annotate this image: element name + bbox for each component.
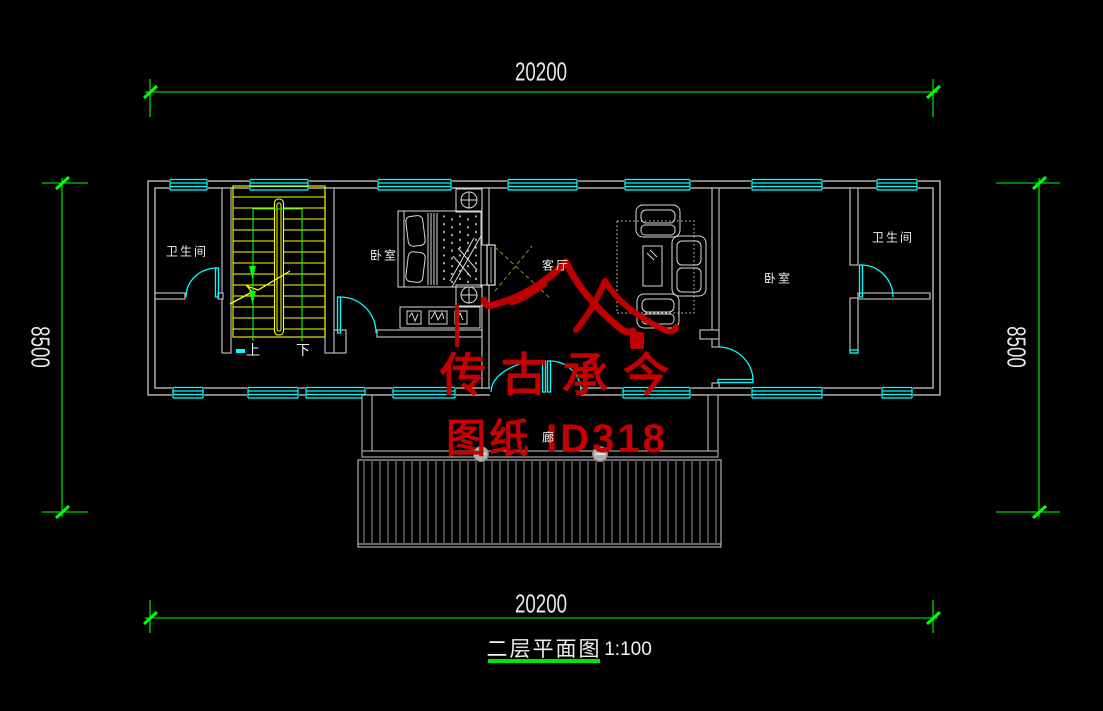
room-label-bedroom-left: 卧室 <box>370 247 398 264</box>
drawing-scale: 1:100 <box>604 639 652 661</box>
terrace-railing <box>358 460 721 547</box>
stair-threshold <box>236 349 245 353</box>
dresser <box>400 307 480 328</box>
corridor-label: 廊 <box>542 429 554 446</box>
watermark-text-line2: 图纸 ID318 <box>446 406 668 464</box>
room-label-bathroom-left: 卫生间 <box>166 243 208 260</box>
floor-plan-canvas[interactable]: 卫生间 卧室 客厅 卧室 卫生间 上 下 廊 20200 20200 8500 … <box>0 0 1103 711</box>
dimension-top: 20200 <box>515 57 567 88</box>
stair-up-label: 上 <box>246 340 260 360</box>
title-underline <box>488 659 600 663</box>
dimension-left: 8500 <box>25 326 56 368</box>
dimension-right: 8500 <box>1001 326 1032 368</box>
room-label-bathroom-right: 卫生间 <box>872 229 914 246</box>
dimension-bottom: 20200 <box>515 589 567 620</box>
room-label-bedroom-right: 卧室 <box>764 270 792 287</box>
watermark-text-line1: 传古承今 <box>440 339 684 405</box>
stair-down-label: 下 <box>296 340 310 360</box>
bed <box>398 211 481 287</box>
room-label-living-room: 客厅 <box>542 257 570 274</box>
